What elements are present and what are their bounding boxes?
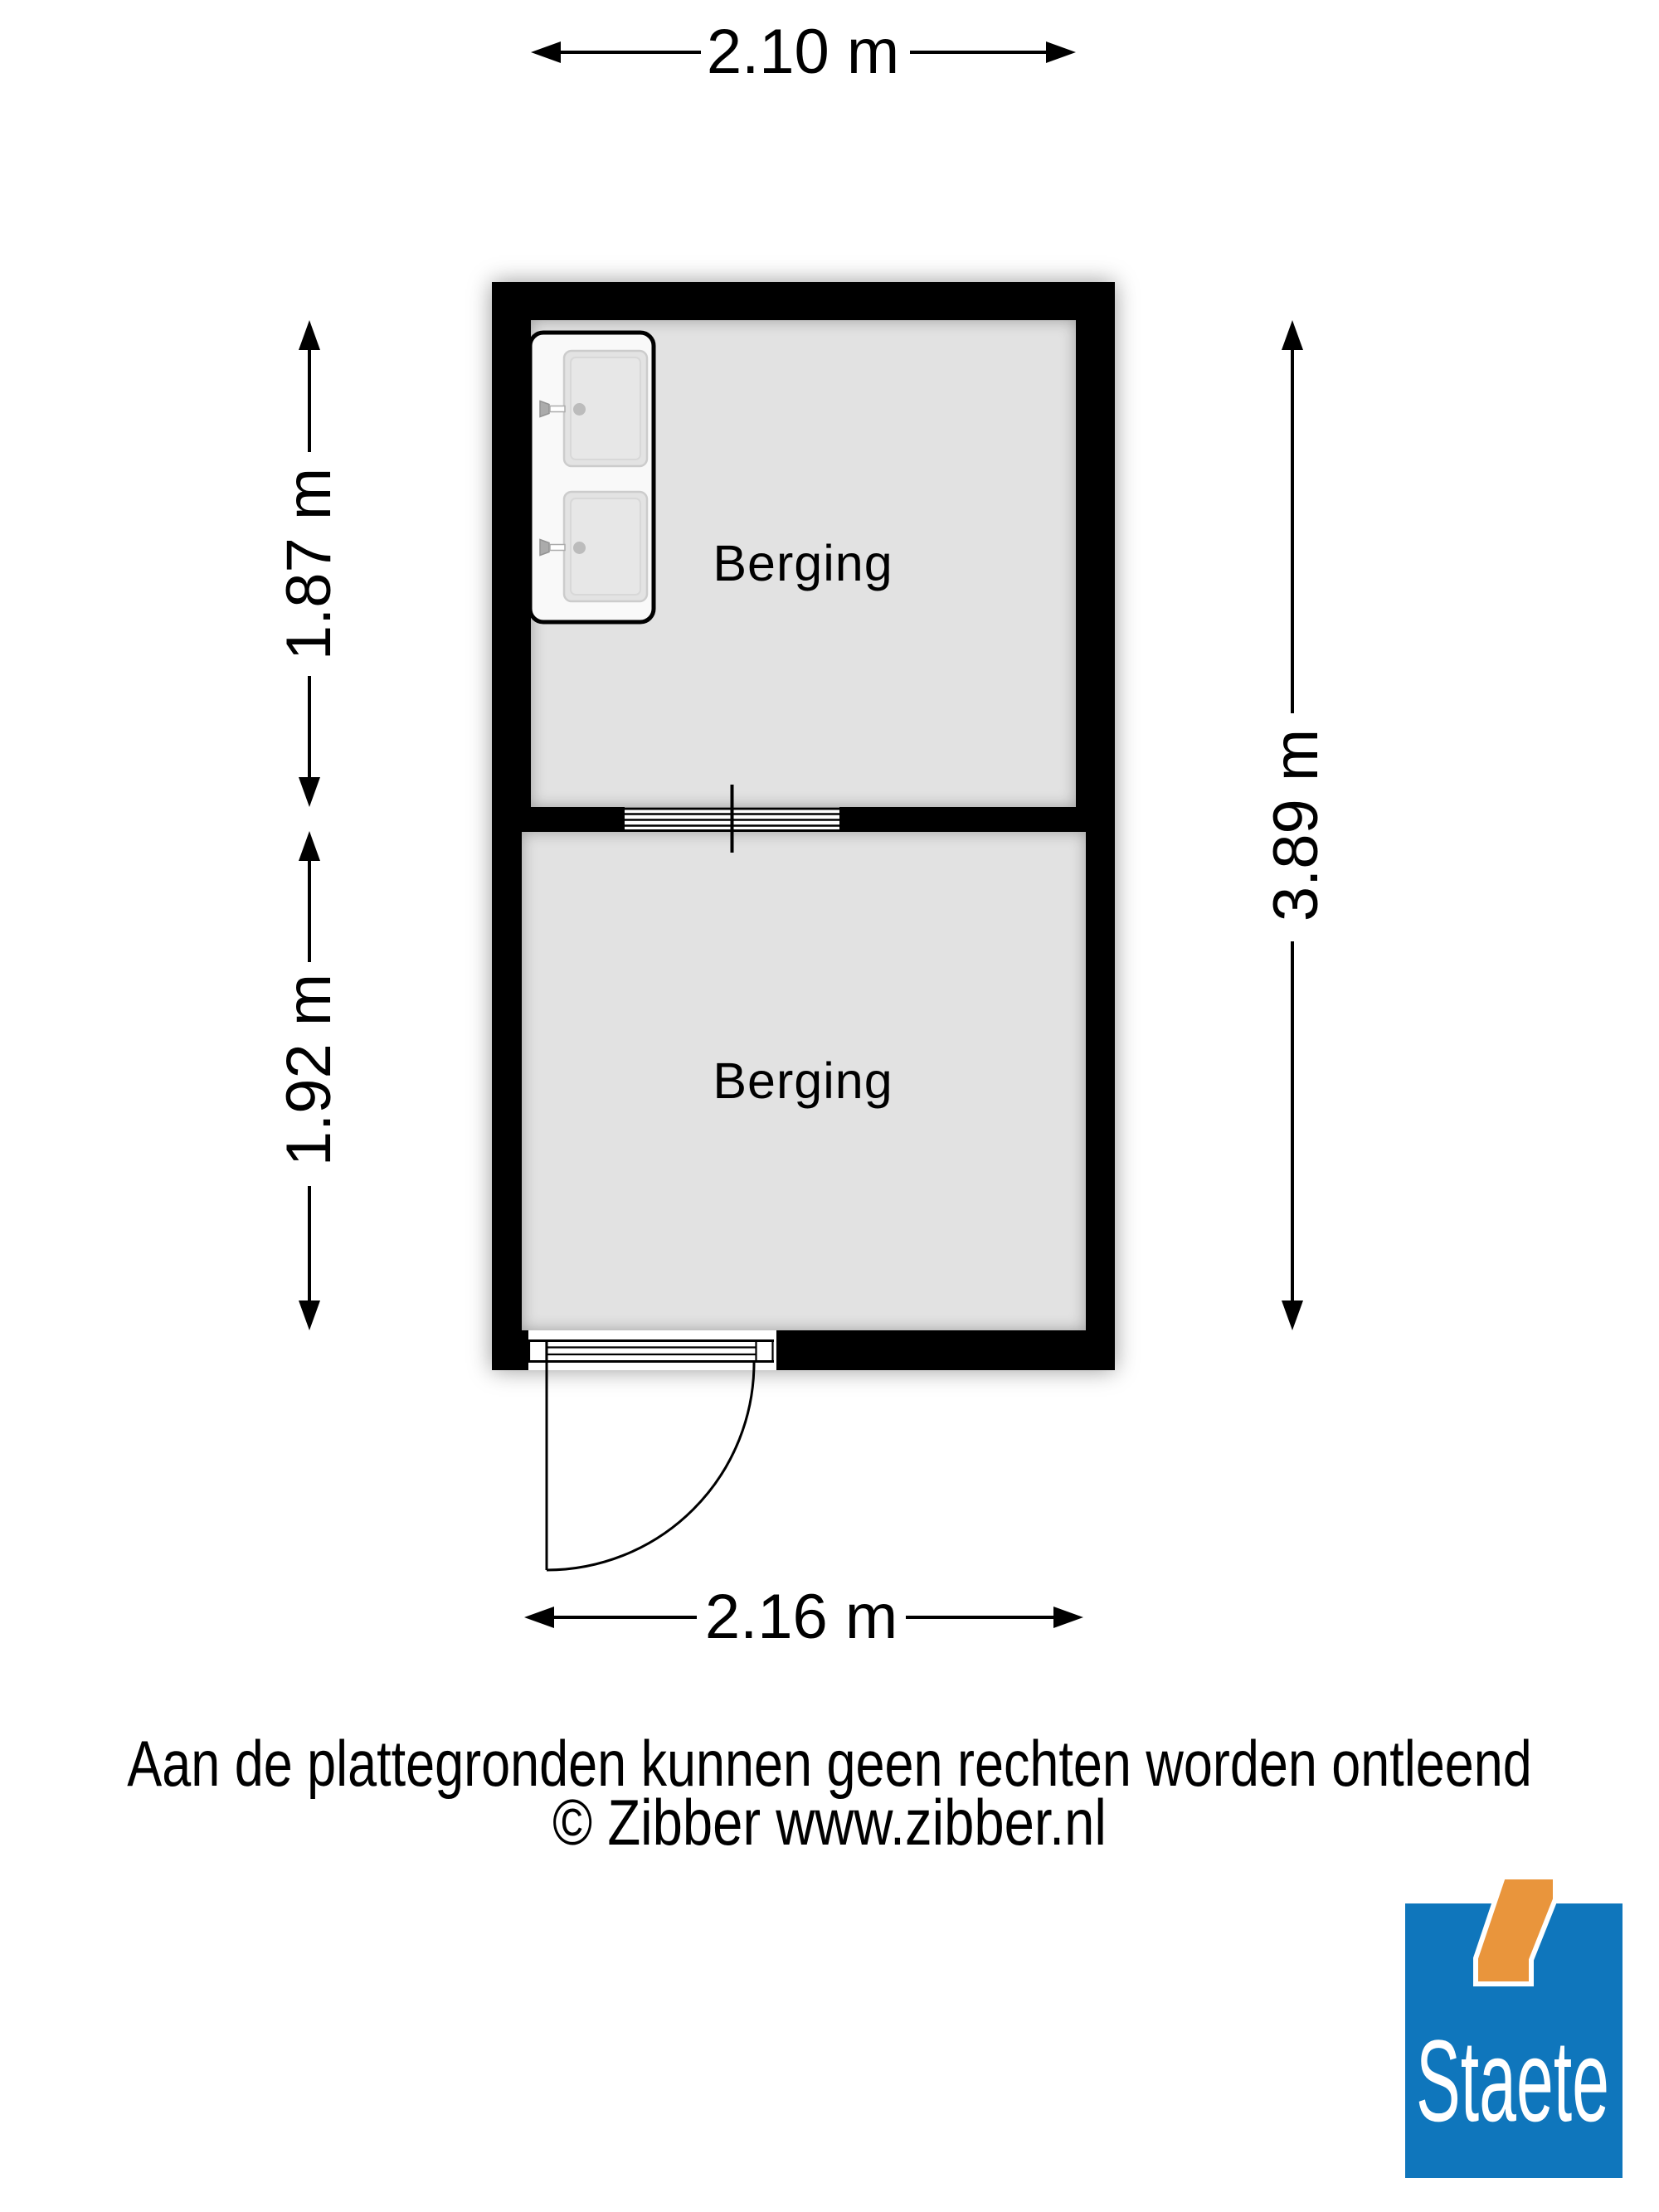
svg-text:2.10 m: 2.10 m [707,17,899,87]
svg-text:© Zibber www.zibber.nl: © Zibber www.zibber.nl [552,1787,1107,1860]
svg-text:2.16 m: 2.16 m [705,1582,898,1652]
svg-text:3.89 m: 3.89 m [1261,729,1331,921]
svg-text:Staete: Staete [1416,2015,1609,2146]
svg-text:Berging: Berging [713,1053,893,1109]
svg-text:1.92 m: 1.92 m [274,974,344,1166]
svg-text:1.87 m: 1.87 m [274,468,344,660]
svg-text:Berging: Berging [713,535,893,591]
